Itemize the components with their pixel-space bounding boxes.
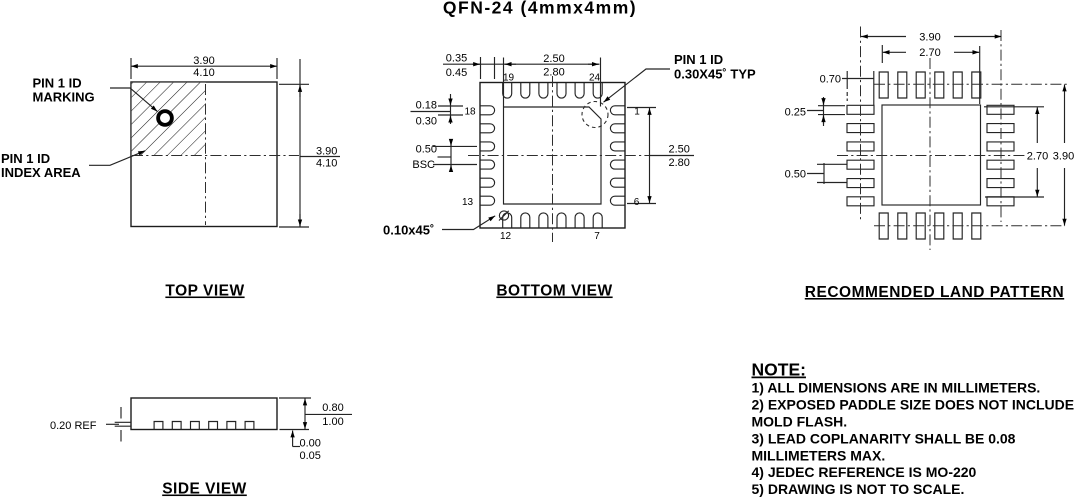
svg-text:PIN 1 ID: PIN 1 ID	[1, 151, 50, 166]
svg-text:18: 18	[464, 107, 476, 118]
svg-text:MARKING: MARKING	[33, 90, 95, 105]
svg-text:24: 24	[589, 73, 601, 84]
svg-text:PIN 1 ID: PIN 1 ID	[33, 76, 82, 91]
svg-text:NOTE:: NOTE:	[752, 360, 806, 380]
svg-text:1.00: 1.00	[322, 416, 343, 428]
svg-text:SIDE VIEW: SIDE VIEW	[162, 481, 247, 498]
svg-text:6: 6	[634, 197, 640, 208]
svg-text:BOTTOM VIEW: BOTTOM VIEW	[496, 283, 612, 300]
svg-text:0.00: 0.00	[300, 438, 321, 450]
svg-text:4.10: 4.10	[193, 67, 214, 79]
svg-text:7: 7	[594, 231, 600, 242]
svg-text:2) EXPOSED PADDLE SIZE DOES NO: 2) EXPOSED PADDLE SIZE DOES NOT INCLUDE	[752, 397, 1075, 413]
svg-text:0.50: 0.50	[785, 168, 806, 180]
svg-text:2.50: 2.50	[543, 53, 564, 65]
svg-text:0.30: 0.30	[416, 115, 437, 127]
svg-text:4.10: 4.10	[316, 158, 337, 170]
svg-text:QFN-24 (4mmx4mm): QFN-24 (4mmx4mm)	[443, 0, 637, 18]
svg-text:INDEX AREA: INDEX AREA	[1, 165, 81, 180]
svg-text:0.45: 0.45	[446, 67, 467, 79]
svg-text:2.80: 2.80	[543, 67, 564, 79]
svg-text:3.90: 3.90	[919, 31, 940, 43]
svg-text:1) ALL DIMENSIONS ARE IN MILLI: 1) ALL DIMENSIONS ARE IN MILLIMETERS.	[752, 380, 1041, 396]
svg-text:4) JEDEC REFERENCE IS MO-220: 4) JEDEC REFERENCE IS MO-220	[752, 464, 977, 480]
svg-text:0.05: 0.05	[300, 450, 321, 462]
svg-text:0.10x45˚: 0.10x45˚	[383, 223, 434, 238]
svg-text:13: 13	[462, 197, 474, 208]
svg-text:3.90: 3.90	[193, 55, 214, 67]
svg-text:MOLD FLASH.: MOLD FLASH.	[752, 414, 848, 430]
svg-text:0.30X45˚ TYP: 0.30X45˚ TYP	[674, 67, 756, 82]
svg-text:RECOMMENDED LAND PATTERN: RECOMMENDED LAND PATTERN	[805, 284, 1064, 301]
svg-text:0.35: 0.35	[446, 52, 467, 64]
svg-text:BSC: BSC	[412, 159, 435, 171]
svg-text:MILLIMETERS MAX.: MILLIMETERS MAX.	[752, 448, 886, 464]
svg-text:0.70: 0.70	[820, 73, 841, 85]
svg-text:2.50: 2.50	[669, 143, 690, 155]
svg-text:12: 12	[500, 231, 512, 242]
svg-text:TOP VIEW: TOP VIEW	[165, 283, 244, 300]
svg-text:5) DRAWING IS NOT TO SCALE.: 5) DRAWING IS NOT TO SCALE.	[752, 481, 965, 497]
svg-text:2.70: 2.70	[1027, 150, 1048, 162]
svg-text:0.50: 0.50	[416, 144, 437, 156]
svg-text:0.80: 0.80	[322, 402, 343, 414]
svg-text:0.25: 0.25	[785, 106, 806, 118]
svg-text:0.20 REF: 0.20 REF	[50, 420, 97, 432]
svg-text:3) LEAD COPLANARITY SHALL BE 0: 3) LEAD COPLANARITY SHALL BE 0.08	[752, 431, 1016, 447]
svg-text:3.90: 3.90	[316, 146, 337, 158]
svg-text:19: 19	[503, 73, 515, 84]
svg-text:1: 1	[634, 107, 640, 118]
svg-text:2.80: 2.80	[669, 157, 690, 169]
svg-text:0.18: 0.18	[416, 99, 437, 111]
svg-text:PIN 1 ID: PIN 1 ID	[674, 52, 723, 67]
svg-text:2.70: 2.70	[919, 47, 940, 59]
svg-text:3.90: 3.90	[1053, 150, 1074, 162]
